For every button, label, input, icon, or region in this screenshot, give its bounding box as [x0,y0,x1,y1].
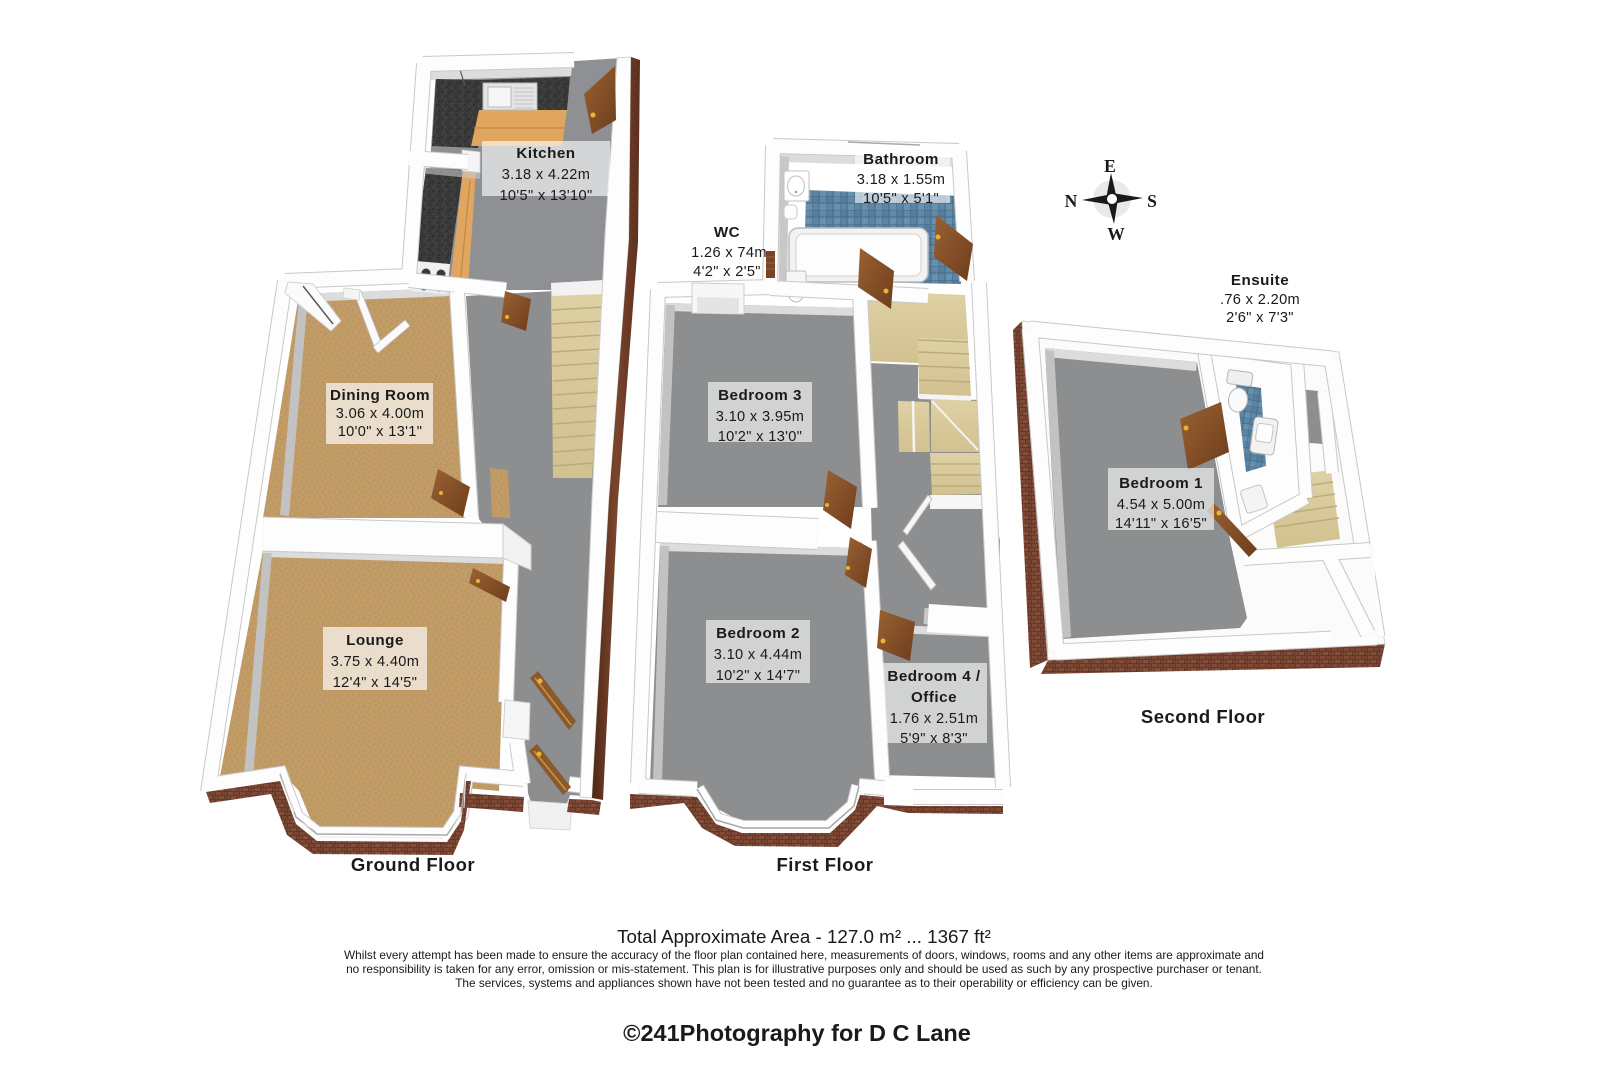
svg-text:Kitchen: Kitchen [516,145,575,162]
svg-text:3.75 x 4.40m: 3.75 x 4.40m [331,654,420,670]
svg-text:12'4" x 14'5": 12'4" x 14'5" [333,675,418,691]
svg-text:Bathroom: Bathroom [863,151,939,168]
svg-text:N: N [1065,191,1078,211]
svg-text:3.10 x 3.95m: 3.10 x 3.95m [716,409,805,425]
svg-text:Ground Floor: Ground Floor [351,854,475,875]
svg-text:3.10 x 4.44m: 3.10 x 4.44m [714,647,803,663]
svg-text:Bedroom 2: Bedroom 2 [716,625,800,642]
svg-text:Lounge: Lounge [346,632,404,649]
svg-text:Bedroom 4 /: Bedroom 4 / [887,668,981,685]
svg-text:2'6" x 7'3": 2'6" x 7'3" [1226,310,1294,326]
svg-text:E: E [1104,156,1116,176]
svg-text:Whilst every attempt has been: Whilst every attempt has been made to en… [344,948,1264,962]
svg-text:4'2" x 2'5": 4'2" x 2'5" [693,264,761,280]
svg-text:Dining Room: Dining Room [330,387,430,404]
svg-text:4.54 x 5.00m: 4.54 x 5.00m [1117,497,1206,513]
svg-text:S: S [1147,191,1157,211]
svg-text:Total Approximate Area - 127.0: Total Approximate Area - 127.0 m² ... 13… [617,926,991,947]
svg-text:10'2" x 13'0": 10'2" x 13'0" [718,429,803,445]
svg-text:1.26 x 74m: 1.26 x 74m [691,245,767,261]
svg-text:.76 x 2.20m: .76 x 2.20m [1220,292,1300,308]
svg-text:3.06 x 4.00m: 3.06 x 4.00m [336,406,425,422]
svg-text:10'0" x 13'1": 10'0" x 13'1" [338,424,423,440]
svg-text:Bedroom 1: Bedroom 1 [1119,475,1203,492]
svg-text:©241Photography for D C Lane: ©241Photography for D C Lane [623,1020,971,1046]
svg-text:Ensuite: Ensuite [1231,272,1289,289]
svg-text:Bedroom 3: Bedroom 3 [718,387,802,404]
svg-text:5'9" x 8'3": 5'9" x 8'3" [900,731,968,747]
svg-text:10'5" x 13'10": 10'5" x 13'10" [499,188,592,204]
svg-text:Office: Office [911,689,957,706]
svg-text:Second Floor: Second Floor [1141,706,1265,727]
svg-text:W: W [1107,224,1125,244]
svg-text:3.18 x 1.55m: 3.18 x 1.55m [857,172,946,188]
svg-text:no responsibility is taken for: no responsibility is taken for any error… [346,962,1262,976]
svg-text:3.18 x 4.22m: 3.18 x 4.22m [502,167,591,183]
svg-text:WC: WC [714,224,740,241]
svg-text:The services, systems and appl: The services, systems and appliances sho… [455,976,1153,990]
svg-text:10'5" x 5'1": 10'5" x 5'1" [863,191,939,207]
svg-text:10'2" x 14'7": 10'2" x 14'7" [716,668,801,684]
svg-text:First Floor: First Floor [777,854,874,875]
svg-text:1.76 x 2.51m: 1.76 x 2.51m [890,711,979,727]
svg-text:14'11" x 16'5": 14'11" x 16'5" [1115,516,1207,532]
